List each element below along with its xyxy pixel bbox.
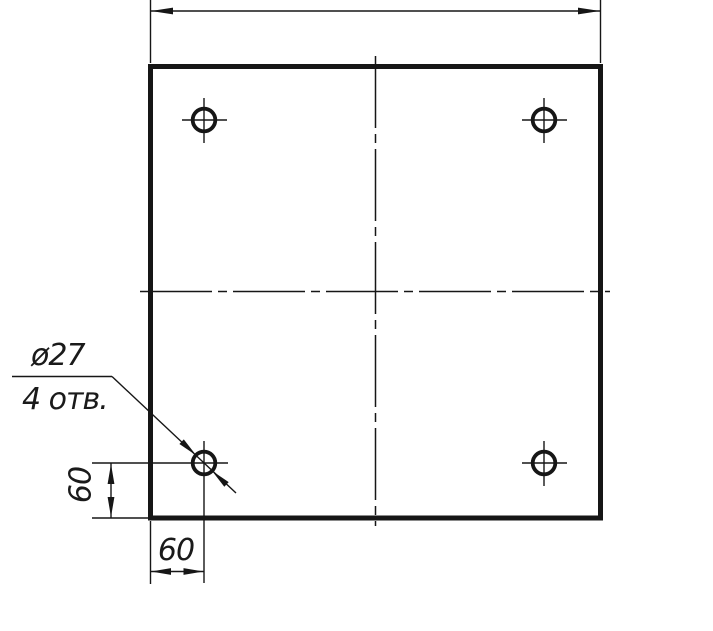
hole-bottom-right xyxy=(522,441,567,486)
dimension-vertical-60: 60 xyxy=(64,463,149,518)
dim-h-label: 60 xyxy=(158,533,194,568)
hole-top-right xyxy=(522,98,567,143)
dim-h-arrow-left xyxy=(151,568,171,575)
top-dimension-arrow-left xyxy=(151,8,173,15)
plate-drawing: ø27 4 отв. 60 60 xyxy=(0,0,713,631)
top-dimension-arrow-right xyxy=(578,8,600,15)
diameter-leader: ø27 4 отв. xyxy=(12,338,236,493)
dim-v-label: 60 xyxy=(64,467,99,503)
leader-diameter-label: ø27 xyxy=(30,338,85,373)
top-dimension xyxy=(151,0,601,63)
leader-arrow-upper xyxy=(179,439,196,455)
dim-v-arrow-down xyxy=(108,497,115,517)
leader-arrow-lower xyxy=(212,471,229,487)
hole-top-left xyxy=(182,98,227,143)
dimension-horizontal-60: 60 xyxy=(151,521,205,584)
leader-holes-label: 4 отв. xyxy=(22,382,108,417)
technical-drawing-canvas: ø27 4 отв. 60 60 xyxy=(0,0,713,631)
dim-v-arrow-up xyxy=(108,464,115,484)
dim-h-arrow-right xyxy=(184,568,204,575)
